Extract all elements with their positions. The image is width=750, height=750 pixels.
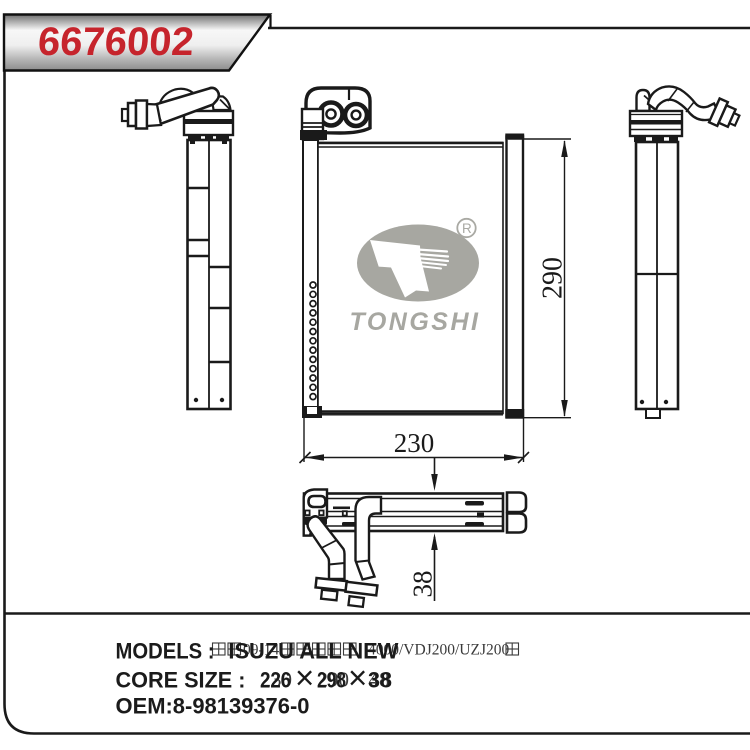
svg-text:290: 290	[538, 257, 569, 299]
svg-text:TONGSHI: TONGSHI	[350, 308, 481, 336]
svg-text:OEM:8-98139376-0: OEM:8-98139376-0	[116, 694, 310, 719]
svg-text:38: 38	[408, 571, 438, 598]
svg-text:22629838: 22629838	[260, 668, 392, 693]
svg-text:MODELS :: MODELS :	[116, 639, 215, 664]
svg-text:R: R	[462, 221, 472, 236]
svg-text:CORE SIZE :: CORE SIZE :	[116, 668, 246, 693]
svg-text:6676002: 6676002	[37, 20, 196, 64]
svg-text:230: 230	[394, 428, 435, 458]
